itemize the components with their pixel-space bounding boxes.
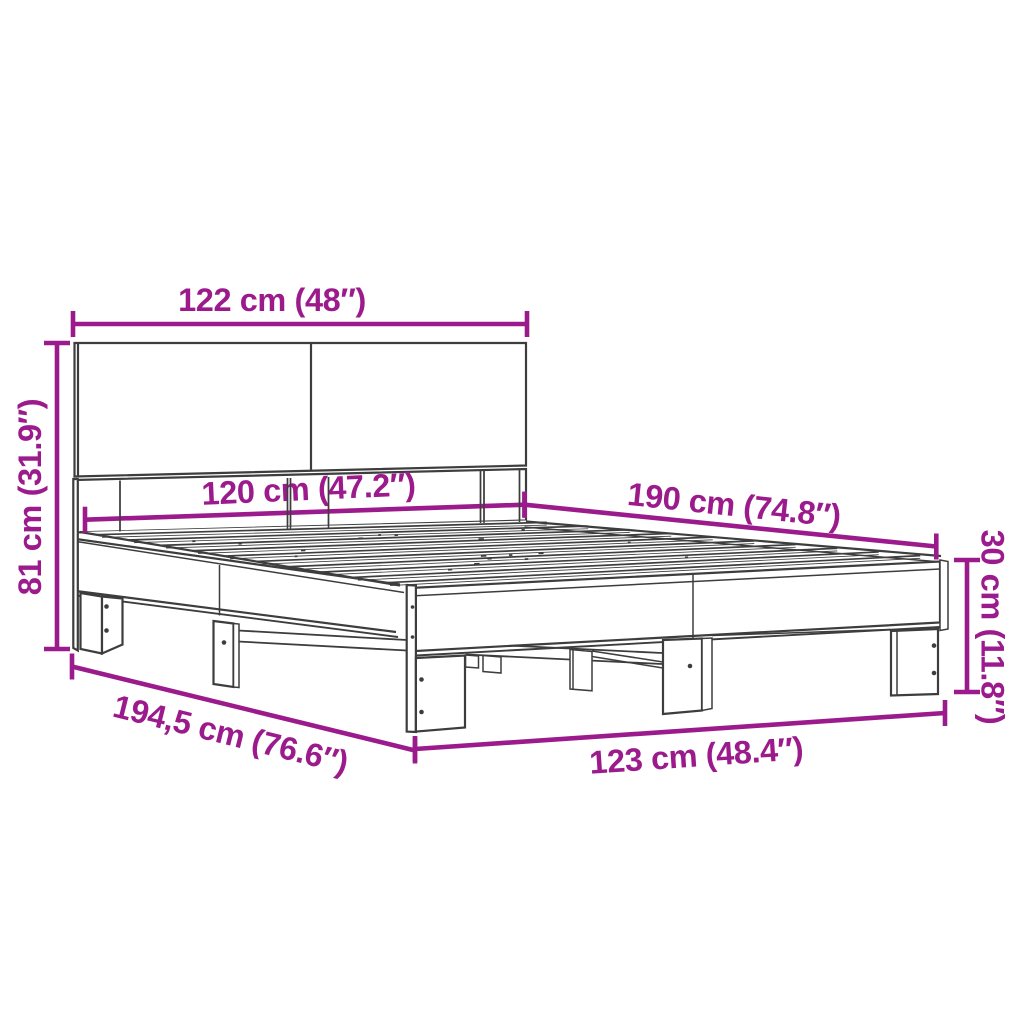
svg-text:81 cm (31.9″): 81 cm (31.9″) (12, 399, 48, 595)
svg-text:122 cm (48″): 122 cm (48″) (178, 282, 366, 318)
svg-text:30 cm (11.8″): 30 cm (11.8″) (975, 530, 1011, 725)
